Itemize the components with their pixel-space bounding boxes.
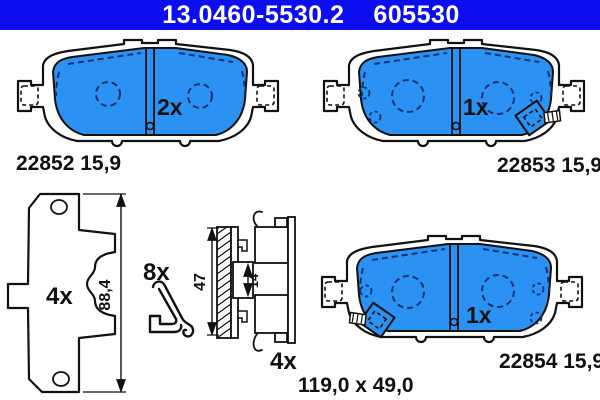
pad-top-right-label: 22853 15,9: [497, 154, 600, 177]
pad-shape: [18, 40, 278, 146]
section-view: 14 47 4x: [192, 211, 297, 375]
pad-drawing-top-left: 2x: [18, 40, 278, 146]
part-number: 13.0460-5530.2: [162, 1, 344, 30]
pad-bottom-right-count: 1x: [466, 302, 492, 328]
backplate-height-dim: 88,4: [97, 279, 114, 310]
backplate-count: 4x: [46, 283, 73, 310]
pad-top-right-count: 1x: [463, 94, 489, 120]
pad-shape: [324, 40, 584, 146]
pad-top-left-count: 2x: [157, 94, 183, 120]
wva-number: 605530: [373, 1, 459, 30]
spring-clip-drawing: 8x: [143, 259, 193, 336]
technical-drawing: 2x 22852 15,9 1x 22853 15,9 1x 22854 15,…: [0, 30, 600, 400]
pad-dimensions-label: 119,0 x 49,0: [298, 374, 414, 397]
brake-pad-catalog-drawing: 13.0460-5530.2 605530: [0, 0, 600, 400]
section-count: 4x: [270, 348, 297, 375]
backplate-profile-view: 88,4 4x: [8, 194, 126, 392]
section-height-dim: 47: [192, 273, 209, 291]
pad-top-left-label: 22852 15,9: [16, 152, 121, 175]
title-bar: 13.0460-5530.2 605530: [0, 0, 600, 30]
section-inner-dim: 14: [246, 273, 261, 288]
pad-drawing-bottom-right: 1x: [322, 236, 582, 342]
pad-bottom-right-label: 22854 15,9: [499, 350, 600, 373]
pad-drawing-top-right: 1x: [324, 40, 584, 146]
